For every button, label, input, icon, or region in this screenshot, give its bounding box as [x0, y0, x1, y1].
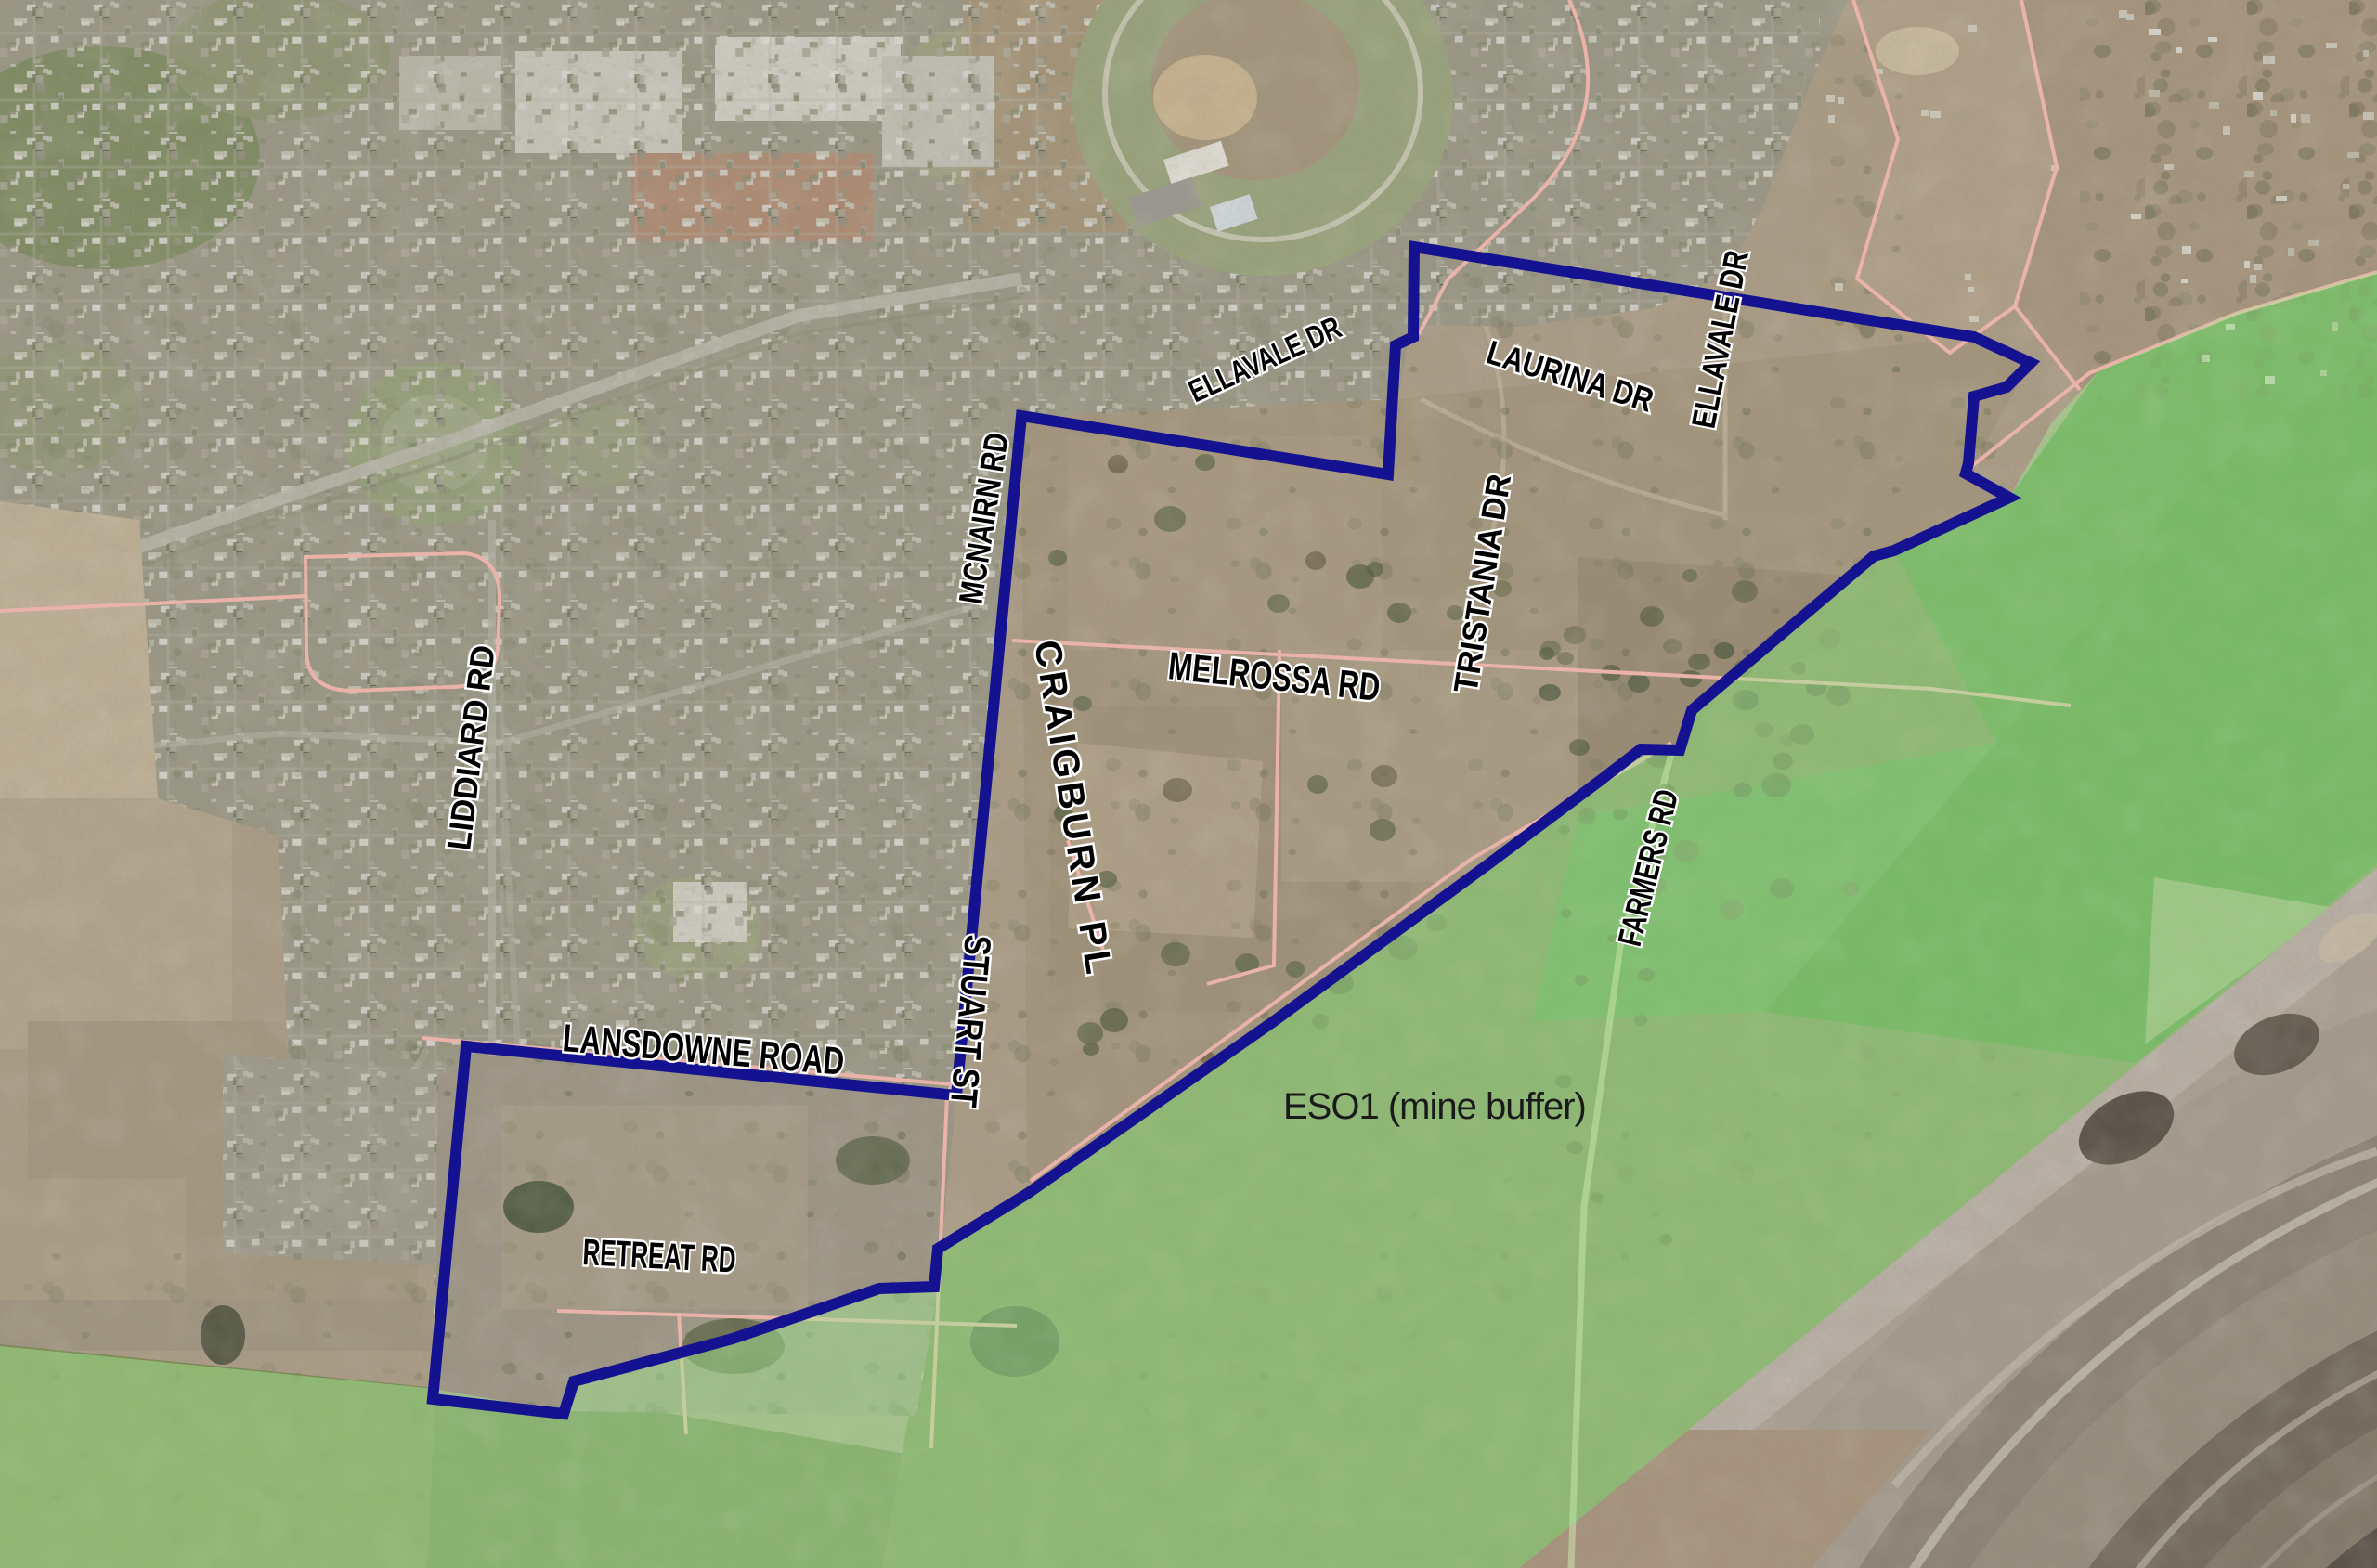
svg-text:ESO1 (mine buffer): ESO1 (mine buffer)	[1283, 1086, 1586, 1127]
svg-text:RETREAT RD: RETREAT RD	[582, 1232, 737, 1281]
